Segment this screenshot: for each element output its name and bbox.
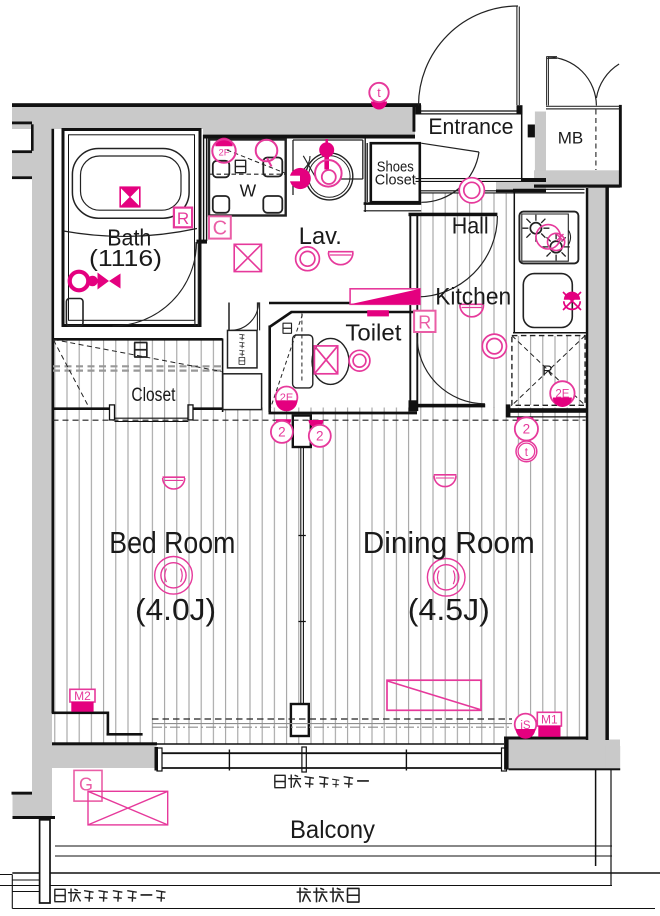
svg-text:M2: M2 bbox=[74, 689, 91, 703]
svg-text:Lav.: Lav. bbox=[299, 223, 342, 250]
svg-text:R: R bbox=[542, 364, 552, 380]
svg-text:C: C bbox=[213, 218, 227, 240]
svg-text:2E: 2E bbox=[555, 388, 569, 400]
svg-text:(4.5J): (4.5J) bbox=[408, 592, 490, 627]
svg-text:2: 2 bbox=[523, 422, 531, 437]
svg-text:Kitchen: Kitchen bbox=[435, 284, 511, 311]
svg-text:W: W bbox=[240, 181, 257, 201]
svg-text:(4.0J): (4.0J) bbox=[135, 592, 216, 627]
svg-text:iS: iS bbox=[520, 720, 531, 732]
svg-text:M1: M1 bbox=[541, 712, 558, 726]
svg-text:Balcony: Balcony bbox=[290, 816, 375, 844]
svg-text:t: t bbox=[377, 86, 381, 100]
svg-text:Hall: Hall bbox=[452, 212, 489, 238]
svg-text:R: R bbox=[177, 209, 189, 228]
svg-text:Closet: Closet bbox=[131, 385, 176, 406]
svg-text:2F: 2F bbox=[218, 147, 229, 158]
svg-text:Closet: Closet bbox=[375, 171, 417, 188]
svg-text:(1116): (1116) bbox=[89, 245, 162, 271]
svg-text:2E: 2E bbox=[280, 392, 293, 404]
svg-text:2: 2 bbox=[316, 428, 324, 443]
svg-text:R: R bbox=[418, 312, 431, 332]
svg-text:Dining Room: Dining Room bbox=[363, 525, 535, 560]
svg-text:MB: MB bbox=[558, 128, 584, 147]
svg-text:2: 2 bbox=[278, 424, 286, 439]
svg-text:Bed Room: Bed Room bbox=[109, 525, 235, 560]
svg-text:Entrance: Entrance bbox=[428, 114, 513, 139]
svg-text:Toilet: Toilet bbox=[345, 320, 402, 346]
